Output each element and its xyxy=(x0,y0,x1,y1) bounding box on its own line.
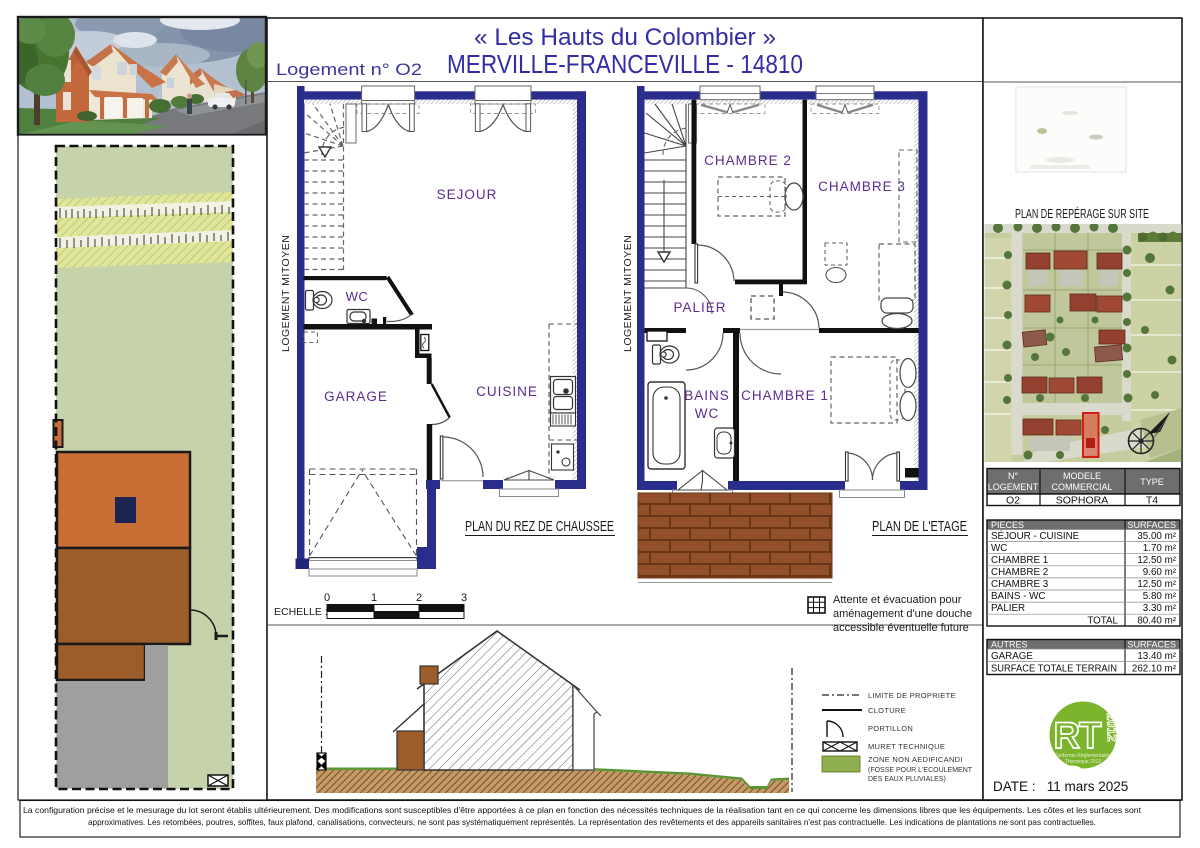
svg-text:0: 0 xyxy=(324,592,330,604)
svg-text:PALIER: PALIER xyxy=(673,300,726,315)
svg-text:(FOSSE POUR L'ECOULEMENT: (FOSSE POUR L'ECOULEMENT xyxy=(868,767,973,774)
svg-text:1: 1 xyxy=(371,592,377,604)
svg-text:12.50 m²: 12.50 m² xyxy=(1137,555,1176,566)
svg-text:T4: T4 xyxy=(1146,495,1158,507)
svg-text:DATE : 11 mars 2025: DATE : 11 mars 2025 xyxy=(993,779,1128,794)
svg-text:TYPE: TYPE xyxy=(1140,477,1164,487)
svg-text:N°: N° xyxy=(1008,471,1018,481)
svg-text:SURFACES: SURFACES xyxy=(1127,520,1176,530)
svg-text:BAINS: BAINS xyxy=(684,388,730,403)
svg-text:CHAMBRE 2: CHAMBRE 2 xyxy=(704,153,792,168)
svg-text:WC: WC xyxy=(346,289,369,304)
svg-text:PLAN DU REZ DE CHAUSSEE: PLAN DU REZ DE CHAUSSEE xyxy=(465,519,614,535)
svg-text:12.50 m²: 12.50 m² xyxy=(1137,579,1176,590)
svg-text:2012: 2012 xyxy=(1104,713,1120,742)
svg-text:CHAMBRE 1: CHAMBRE 1 xyxy=(991,555,1048,566)
svg-text:3: 3 xyxy=(461,592,467,604)
svg-text:PLAN DE REPÉRAGE SUR SITE: PLAN DE REPÉRAGE SUR SITE xyxy=(1015,206,1149,221)
svg-text:1.70 m²: 1.70 m² xyxy=(1143,543,1177,554)
svg-text:35.00 m²: 35.00 m² xyxy=(1137,531,1176,542)
svg-text:ZONE NON AEDIFICANDI: ZONE NON AEDIFICANDI xyxy=(868,755,963,764)
svg-text:80.40 m²: 80.40 m² xyxy=(1137,616,1176,627)
svg-text:LOGEMENT MITOYEN: LOGEMENT MITOYEN xyxy=(622,235,634,352)
svg-text:2: 2 xyxy=(416,592,422,604)
svg-text:ECHELLE :: ECHELLE : xyxy=(274,606,328,618)
svg-text:262.10 m²: 262.10 m² xyxy=(1132,664,1177,675)
svg-text:« Les Hauts du Colombier »: « Les Hauts du Colombier » xyxy=(474,24,776,51)
svg-text:accessible éventuelle future: accessible éventuelle future xyxy=(833,622,969,634)
svg-text:MERVILLE-FRANCEVILLE - 14810: MERVILLE-FRANCEVILLE - 14810 xyxy=(447,51,803,79)
svg-text:MURET TECHNIQUE: MURET TECHNIQUE xyxy=(868,742,945,751)
svg-text:CLOTURE: CLOTURE xyxy=(868,706,906,715)
svg-text:LOGEMENT MITOYEN: LOGEMENT MITOYEN xyxy=(280,235,292,352)
svg-text:SURFACE TOTALE TERRAIN: SURFACE TOTALE TERRAIN xyxy=(991,664,1117,675)
svg-text:RT: RT xyxy=(1053,715,1102,756)
svg-text:La configuration précise et le: La configuration précise et le mesurage … xyxy=(23,805,1142,815)
svg-text:Logement n° O2: Logement n° O2 xyxy=(276,60,422,79)
svg-text:9.60 m²: 9.60 m² xyxy=(1143,567,1177,578)
svg-text:LOGEMENT: LOGEMENT xyxy=(988,482,1039,492)
svg-text:CHAMBRE 3: CHAMBRE 3 xyxy=(818,179,906,194)
svg-text:COMMERCIAL: COMMERCIAL xyxy=(1051,482,1112,492)
svg-text:MODELE: MODELE xyxy=(1063,471,1101,481)
svg-text:approximatives. Les retombées,: approximatives. Les retombées, poutres, … xyxy=(88,817,1096,827)
svg-text:aménagement d'une douche: aménagement d'une douche xyxy=(833,608,972,620)
svg-text:5.80 m²: 5.80 m² xyxy=(1143,591,1177,602)
svg-text:Attente et évacuation pour: Attente et évacuation pour xyxy=(833,594,962,606)
svg-text:GARAGE: GARAGE xyxy=(324,389,388,404)
svg-text:GARAGE: GARAGE xyxy=(991,651,1033,662)
svg-text:13.40 m²: 13.40 m² xyxy=(1137,651,1176,662)
svg-text:SURFACES: SURFACES xyxy=(1127,640,1176,650)
svg-text:WC: WC xyxy=(991,543,1007,554)
svg-text:CHAMBRE 3: CHAMBRE 3 xyxy=(991,579,1049,590)
svg-text:DES EAUX PLUVIALES): DES EAUX PLUVIALES) xyxy=(868,776,946,783)
svg-text:SEJOUR: SEJOUR xyxy=(437,187,498,202)
svg-text:CHAMBRE 2: CHAMBRE 2 xyxy=(991,567,1048,578)
svg-text:3.30 m²: 3.30 m² xyxy=(1143,603,1177,614)
svg-text:SOPHORA: SOPHORA xyxy=(1056,495,1109,507)
svg-text:O2: O2 xyxy=(1006,495,1020,507)
svg-text:PORTILLON: PORTILLON xyxy=(868,724,913,733)
svg-text:LIMITE DE PROPRIETE: LIMITE DE PROPRIETE xyxy=(868,691,956,700)
svg-text:TOTAL: TOTAL xyxy=(1087,616,1118,627)
svg-text:PLAN DE L'ETAGE: PLAN DE L'ETAGE xyxy=(872,519,967,535)
svg-text:CHAMBRE 1: CHAMBRE 1 xyxy=(741,388,829,403)
svg-text:Thermique 2012: Thermique 2012 xyxy=(1065,759,1102,765)
svg-text:WC: WC xyxy=(695,406,720,421)
svg-text:SÉJOUR - CUISINE: SÉJOUR - CUISINE xyxy=(991,531,1080,542)
svg-text:PALIER: PALIER xyxy=(991,603,1025,614)
svg-text:BAINS - WC: BAINS - WC xyxy=(991,591,1045,602)
svg-text:AUTRES: AUTRES xyxy=(991,640,1028,650)
svg-text:PIECES: PIECES xyxy=(991,520,1024,530)
svg-text:CUISINE: CUISINE xyxy=(476,384,538,399)
